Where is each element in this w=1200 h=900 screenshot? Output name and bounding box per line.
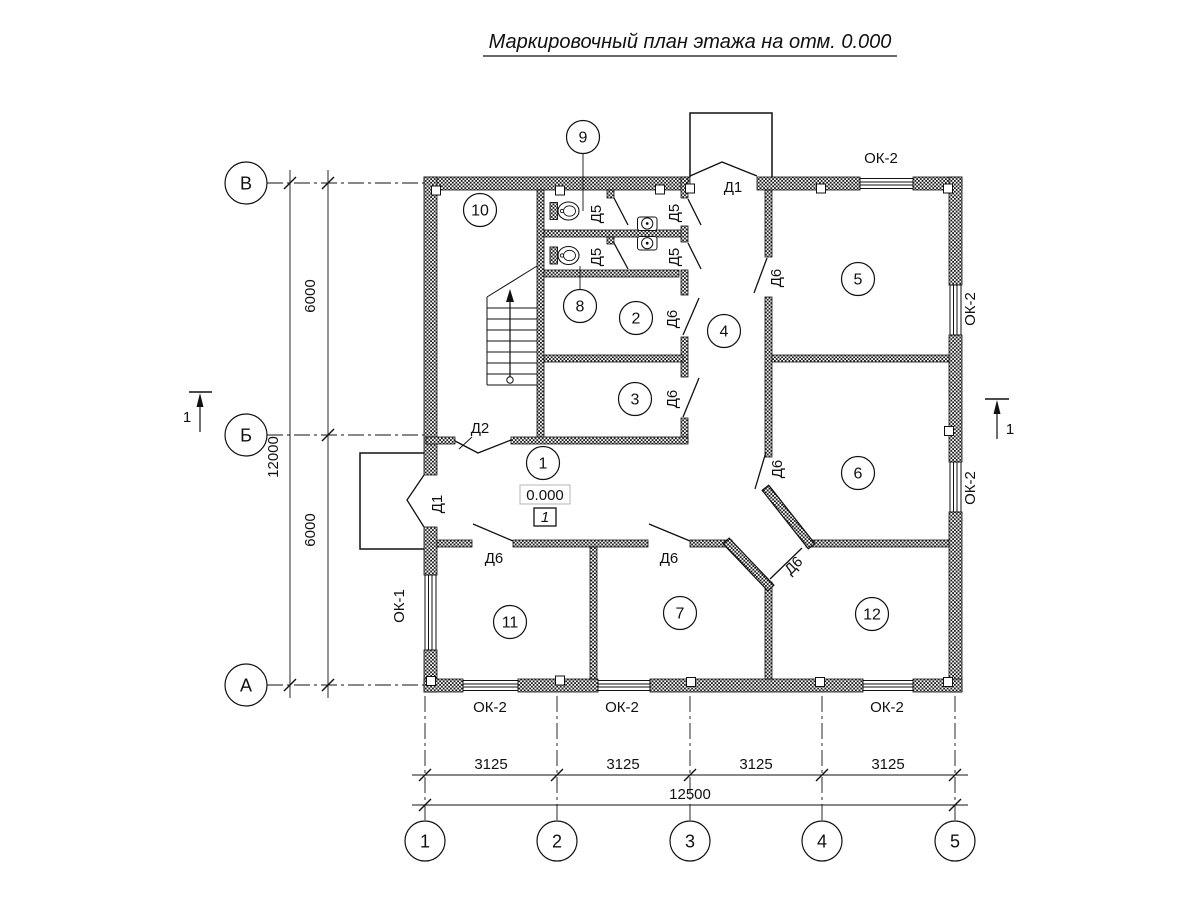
room-number-10: 10 — [471, 203, 489, 220]
door-label-d5-2: Д5 — [666, 204, 683, 223]
wall-top-2 — [757, 177, 860, 190]
room-number-11: 11 — [502, 615, 519, 632]
axis-label-3: 3 — [685, 832, 695, 852]
room-number-6: 6 — [854, 466, 863, 483]
door-label-d1-west: Д1 — [429, 495, 446, 514]
room-number-7: 7 — [676, 606, 685, 623]
door-label-d1-north: Д1 — [724, 179, 743, 196]
dim-seg-2: 3125 — [606, 756, 639, 773]
room-number-3: 3 — [631, 392, 640, 409]
door-d5-wc1 — [614, 198, 628, 225]
room-number-2: 2 — [632, 311, 641, 328]
window-bottom-ok2-2 — [598, 681, 650, 691]
wall-wc-stub-1 — [607, 190, 614, 198]
axis-label-b: Б — [240, 426, 252, 446]
wall-room3-bottom — [511, 437, 688, 444]
axis-label-5: 5 — [950, 832, 960, 852]
window-right-ok2-1 — [950, 285, 961, 335]
door-label-d5-1: Д5 — [588, 205, 605, 224]
room-number-4: 4 — [720, 324, 729, 341]
door-label-d6-room3: Д6 — [664, 390, 681, 409]
wall-bottom-4 — [913, 679, 962, 692]
room-number-12: 12 — [863, 607, 881, 624]
door-d6-room2 — [683, 298, 699, 335]
wall-left-1 — [424, 177, 437, 475]
wall-corridor-left-3 — [681, 270, 688, 295]
room-number-5: 5 — [854, 272, 863, 289]
axis-label-v: В — [240, 174, 252, 194]
axis-label-2: 2 — [552, 832, 562, 852]
door-d6-room6 — [755, 452, 766, 489]
sink-icon-1 — [638, 217, 658, 231]
dim-total: 12500 — [669, 786, 711, 803]
window-top-ok2 — [860, 179, 913, 189]
room-number-9: 9 — [579, 130, 588, 147]
stair-break-line — [487, 266, 537, 297]
wall-room2-3 — [544, 355, 683, 362]
door-label-d6-room2: Д6 — [664, 310, 681, 329]
window-bottom-ok2-3 — [863, 681, 913, 691]
wall-room11-7 — [590, 547, 597, 679]
wall-wc-middle — [544, 230, 683, 237]
wall-wc-stub-2 — [607, 237, 614, 244]
elevation-mark: 0.000 1 — [520, 485, 570, 526]
dim-seg-3: 3125 — [739, 756, 772, 773]
page-title: Маркировочный план этажа на отм. 0.000 — [489, 31, 892, 53]
door-d6-room7 — [649, 524, 690, 541]
window-label-bottom-3: ОК-2 — [870, 699, 904, 716]
door-d2 — [455, 440, 511, 453]
sink-icon-2 — [638, 237, 658, 251]
door-label-d5-4: Д5 — [666, 248, 683, 267]
door-label-d5-3: Д5 — [588, 248, 605, 267]
wall-corridor-left-2 — [681, 226, 688, 242]
window-bottom-ok2-1 — [463, 681, 518, 691]
drawing-title: Маркировочный план этажа на отм. 0.000 — [483, 31, 897, 56]
dim-seg-4: 3125 — [871, 756, 904, 773]
section-arrow-right — [994, 400, 1001, 414]
porch-west — [360, 453, 424, 549]
toilet-icon-1 — [550, 202, 579, 220]
window-left-ok1 — [425, 575, 436, 650]
elevation-value: 0.000 — [526, 487, 564, 504]
stairs — [487, 266, 537, 385]
door-labels: Д1 Д1 Д2 Д5 Д5 Д5 Д5 Д6 Д6 Д6 Д6 Д6 Д6 Д… — [429, 179, 806, 578]
door-label-d6-room5: Д6 — [768, 269, 785, 288]
window-right-ok2-2 — [950, 462, 961, 512]
door-d5-wc2 — [614, 243, 628, 269]
wall-room12-top — [806, 540, 949, 547]
section-label-right: 1 — [1006, 421, 1014, 438]
window-label-right-2: ОК-2 — [962, 471, 979, 505]
door-d5-lobby1 — [688, 199, 701, 225]
room-number-1: 1 — [539, 456, 548, 473]
wall-room5-6 — [772, 355, 949, 362]
stair-arrow-start — [507, 377, 513, 383]
door-d5-lobby2 — [688, 243, 701, 269]
dim-left-total: 12000 — [265, 436, 282, 478]
doors — [407, 162, 802, 579]
axis-label-4: 4 — [817, 832, 827, 852]
diagonal-wall-upper — [768, 491, 809, 543]
dim-left-lower: 6000 — [302, 513, 319, 546]
window-label-bottom-1: ОК-2 — [473, 699, 507, 716]
wall-right-2 — [949, 335, 962, 462]
dim-seg-1: 3125 — [474, 756, 507, 773]
section-arrow-left — [197, 393, 204, 407]
door-label-d6-room7: Д6 — [660, 550, 679, 567]
axis-label-a: А — [240, 676, 252, 696]
window-label-bottom-2: ОК-2 — [605, 699, 639, 716]
wall-bottom-3 — [650, 679, 863, 692]
dim-left-upper: 6000 — [302, 279, 319, 312]
window-label-right-1: ОК-2 — [962, 292, 979, 326]
door-label-d6-room11: Д6 — [485, 550, 504, 567]
door-label-d6-room6: Д6 — [769, 460, 786, 479]
door-d6-room3 — [683, 378, 699, 417]
room-number-8: 8 — [576, 299, 585, 316]
wall-corridor-right-1 — [765, 190, 772, 257]
section-label-left: 1 — [183, 409, 191, 426]
floor-plan-drawing: Маркировочный план этажа на отм. 0.000 В… — [0, 0, 1200, 900]
wall-corridor-right-2 — [765, 297, 772, 457]
section-marks: 1 1 — [183, 392, 1014, 439]
section-mark-right: 1 — [985, 399, 1014, 439]
axis-label-1: 1 — [420, 832, 430, 852]
door-d6-room5 — [754, 258, 767, 293]
door-d1-north — [690, 162, 757, 176]
wall-room7-12 — [765, 582, 772, 679]
porch-north — [690, 113, 772, 177]
section-mark-left: 1 — [183, 392, 212, 432]
wall-room10-right — [537, 190, 544, 443]
floor-number: 1 — [541, 509, 549, 526]
wall-hall-stub — [426, 437, 455, 444]
diagonal-wall-lower — [729, 544, 768, 585]
toilet-icon-2 — [550, 247, 579, 265]
window-label-ok1: ОК-1 — [391, 589, 408, 623]
wall-hall-bottom-1 — [437, 540, 472, 547]
door-label-d6-room12: Д6 — [781, 553, 806, 578]
wall-left-2 — [424, 527, 437, 575]
door-d1-west — [407, 475, 424, 527]
window-label-top: ОК-2 — [864, 150, 898, 167]
wall-right-3 — [949, 512, 962, 692]
door-label-d2: Д2 — [471, 420, 490, 437]
wall-hall-bottom-2 — [513, 540, 648, 547]
floor-plan-sheet: Маркировочный план этажа на отм. 0.000 В… — [0, 0, 1200, 900]
stair-arrow-head — [506, 289, 514, 302]
wall-wc-bottom — [544, 270, 679, 277]
door-d6-room11 — [473, 524, 513, 541]
